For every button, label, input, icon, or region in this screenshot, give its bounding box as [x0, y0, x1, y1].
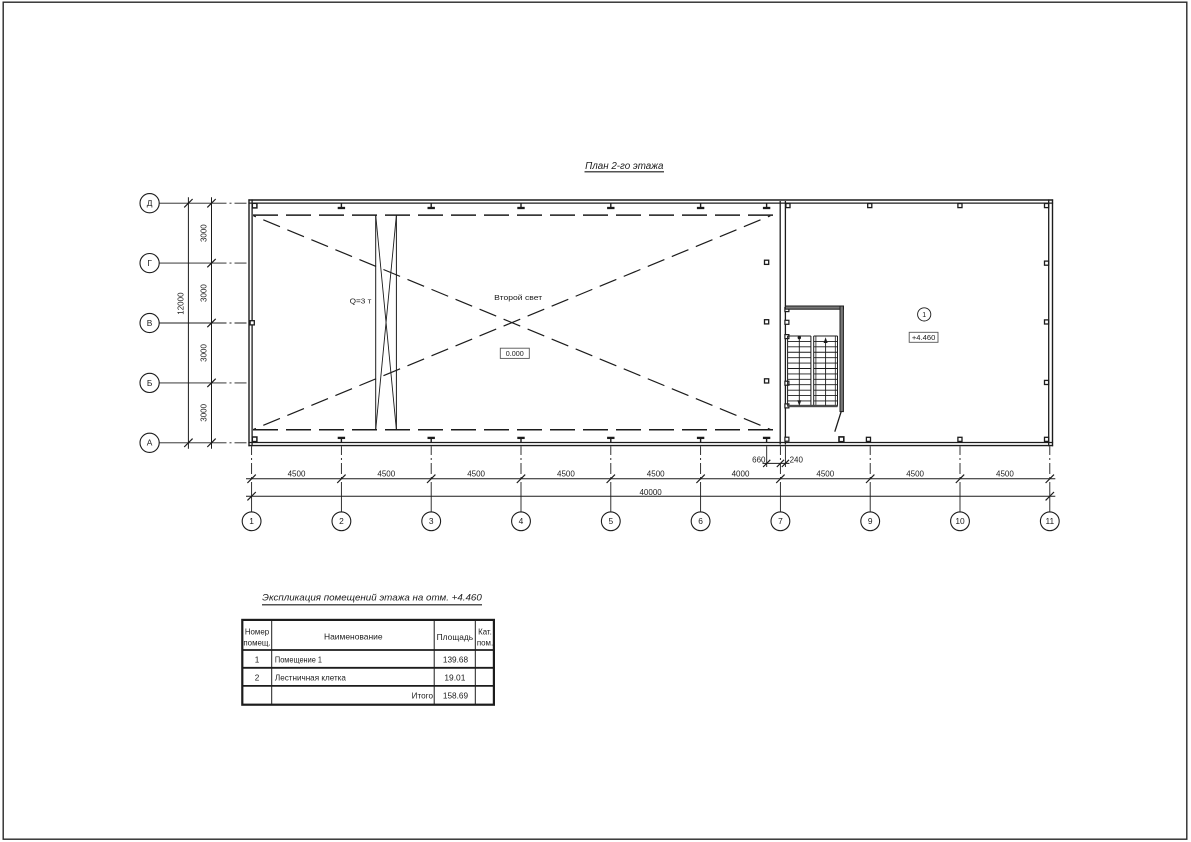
svg-text:1: 1 — [255, 656, 260, 665]
svg-text:4500: 4500 — [288, 469, 306, 478]
svg-text:240: 240 — [790, 455, 804, 464]
svg-text:4500: 4500 — [996, 469, 1014, 478]
svg-text:10: 10 — [955, 516, 965, 526]
svg-text:Площадь: Площадь — [437, 633, 474, 642]
svg-text:3000: 3000 — [200, 224, 209, 242]
svg-text:Помещение 1: Помещение 1 — [275, 656, 323, 665]
svg-text:0.000: 0.000 — [506, 349, 524, 358]
svg-text:660: 660 — [752, 455, 766, 464]
svg-text:Б: Б — [147, 378, 153, 388]
svg-text:3000: 3000 — [200, 403, 209, 421]
svg-text:1: 1 — [249, 516, 254, 526]
svg-text:2: 2 — [339, 516, 344, 526]
svg-text:В: В — [147, 318, 153, 328]
svg-text:9: 9 — [868, 516, 873, 526]
svg-text:5: 5 — [608, 516, 613, 526]
svg-text:4500: 4500 — [557, 469, 575, 478]
svg-text:4500: 4500 — [906, 469, 924, 478]
svg-text:пом.: пом. — [477, 638, 493, 647]
svg-text:А: А — [147, 438, 153, 448]
svg-text:139.68: 139.68 — [443, 656, 469, 665]
svg-text:+4.460: +4.460 — [912, 333, 936, 342]
svg-text:Наименование: Наименование — [324, 632, 383, 641]
svg-text:4500: 4500 — [467, 469, 485, 478]
svg-text:11: 11 — [1045, 516, 1054, 526]
svg-text:3000: 3000 — [200, 344, 209, 362]
svg-text:Второй свет: Второй свет — [494, 293, 543, 302]
svg-text:2: 2 — [255, 673, 260, 682]
svg-text:158.69: 158.69 — [443, 692, 469, 701]
svg-text:6: 6 — [698, 516, 703, 526]
svg-text:40000: 40000 — [639, 488, 662, 497]
svg-text:1: 1 — [922, 312, 926, 319]
svg-text:7: 7 — [778, 516, 783, 526]
svg-text:Д: Д — [147, 198, 153, 208]
svg-text:4: 4 — [519, 516, 524, 526]
svg-text:3000: 3000 — [200, 284, 209, 302]
svg-text:12000: 12000 — [177, 292, 186, 315]
svg-text:Лестничная клетка: Лестничная клетка — [275, 673, 346, 682]
svg-text:19.01: 19.01 — [444, 673, 465, 682]
svg-text:Г: Г — [147, 258, 152, 268]
svg-text:Кат.: Кат. — [478, 627, 492, 636]
svg-text:Q=3 т: Q=3 т — [350, 296, 372, 305]
svg-text:4500: 4500 — [816, 469, 834, 478]
svg-text:помещ.: помещ. — [243, 638, 270, 647]
svg-text:4500: 4500 — [647, 469, 665, 478]
svg-text:Номер: Номер — [245, 627, 270, 636]
svg-text:Итого: Итого — [412, 692, 434, 701]
svg-text:План 2-го этажа: План 2-го этажа — [585, 161, 664, 172]
svg-text:4000: 4000 — [732, 469, 750, 478]
svg-text:Экспликация помещений этажа на: Экспликация помещений этажа на отм. +4.4… — [262, 593, 483, 603]
svg-text:4500: 4500 — [377, 469, 395, 478]
svg-text:3: 3 — [429, 516, 434, 526]
